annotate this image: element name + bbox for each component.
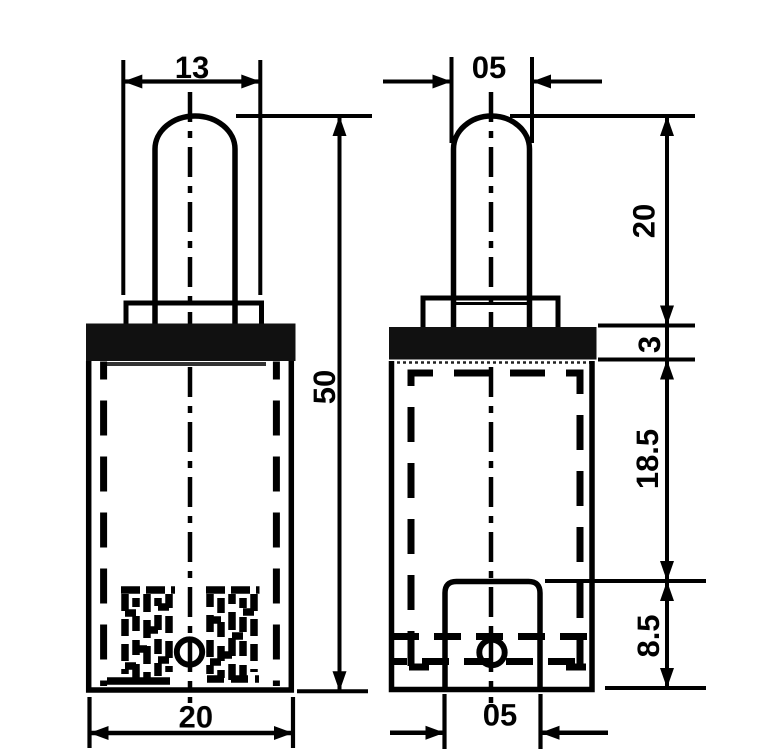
svg-text:20: 20 — [179, 699, 214, 734]
svg-text:20: 20 — [627, 204, 662, 238]
svg-text:05: 05 — [483, 697, 518, 732]
svg-text:05: 05 — [472, 50, 507, 85]
svg-text:50: 50 — [307, 370, 342, 404]
svg-text:13: 13 — [175, 50, 210, 85]
svg-text:3: 3 — [632, 336, 667, 353]
svg-text:8.5: 8.5 — [631, 614, 666, 657]
svg-text:18.5: 18.5 — [630, 429, 665, 489]
